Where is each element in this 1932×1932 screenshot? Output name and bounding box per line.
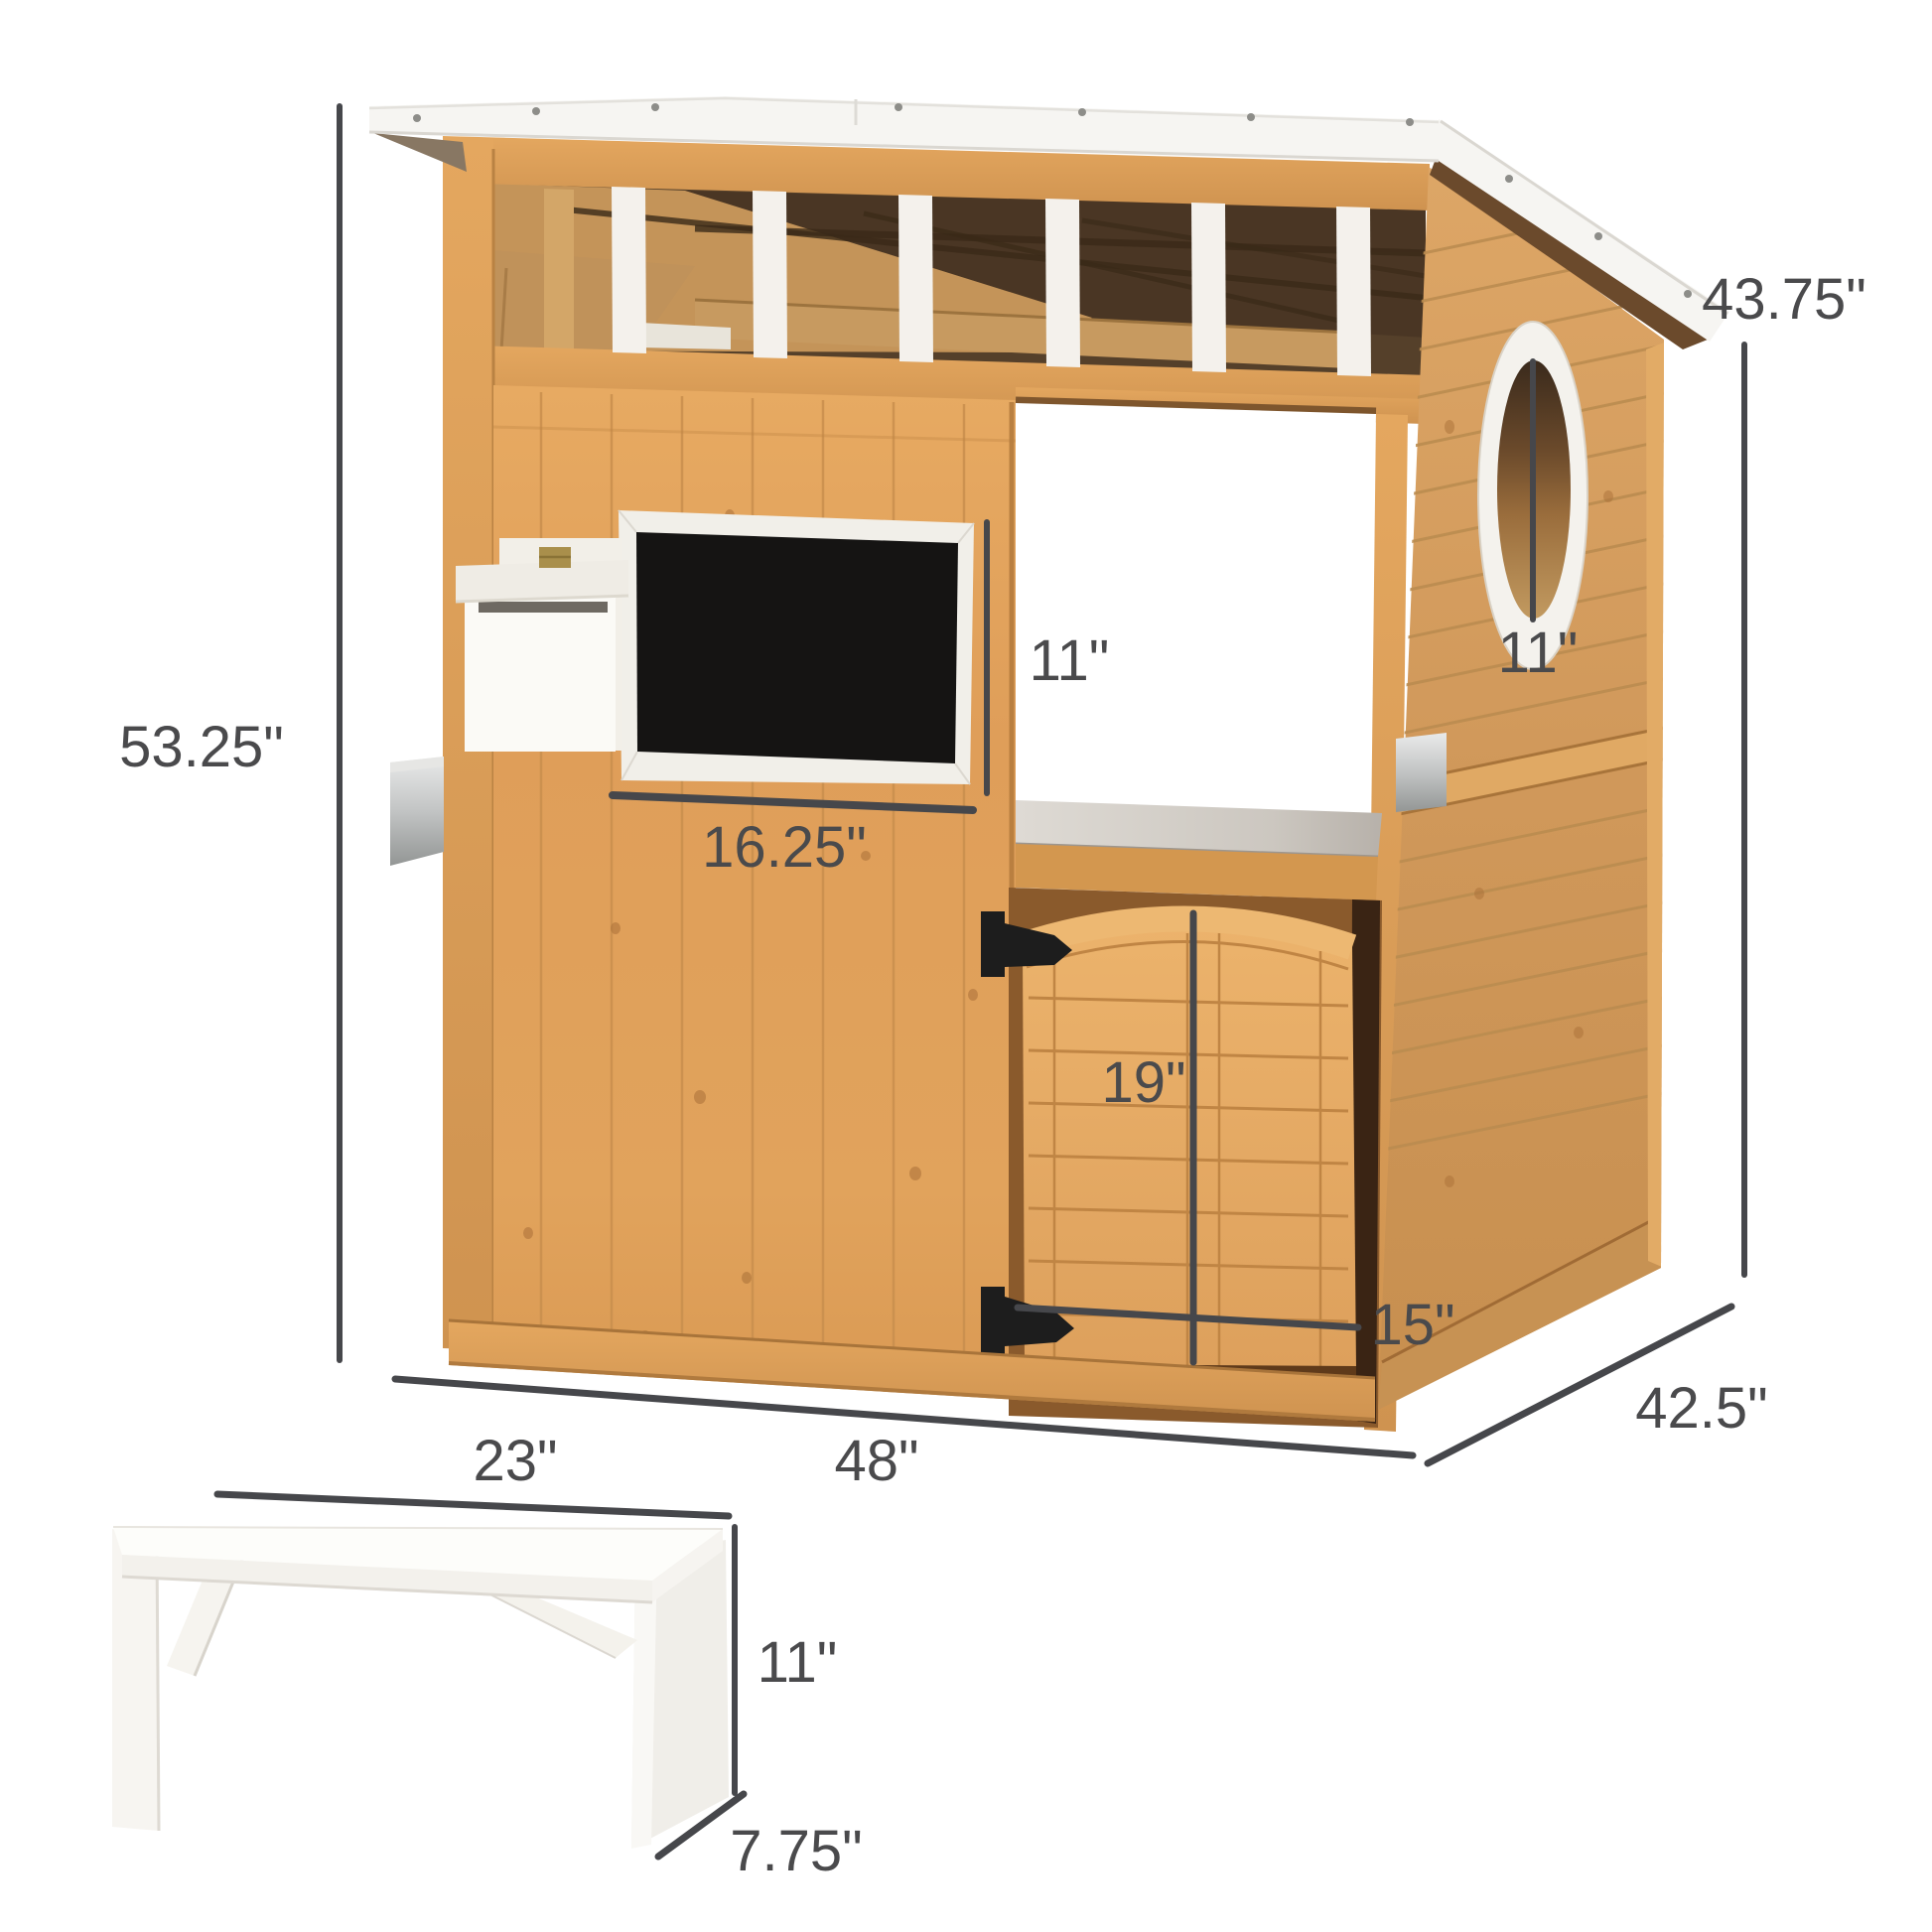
svg-text:11": 11"	[1030, 628, 1110, 693]
svg-text:16.25": 16.25"	[702, 815, 867, 880]
svg-text:11": 11"	[758, 1630, 838, 1695]
svg-text:48": 48"	[834, 1429, 918, 1493]
svg-text:15": 15"	[1370, 1293, 1454, 1357]
svg-text:7.75": 7.75"	[730, 1819, 862, 1883]
svg-text:11": 11"	[1498, 621, 1579, 685]
svg-text:42.5": 42.5"	[1635, 1376, 1767, 1441]
svg-text:23": 23"	[473, 1429, 557, 1493]
svg-text:19": 19"	[1101, 1050, 1185, 1115]
svg-text:53.25": 53.25"	[119, 715, 284, 779]
svg-text:43.75": 43.75"	[1702, 267, 1866, 332]
